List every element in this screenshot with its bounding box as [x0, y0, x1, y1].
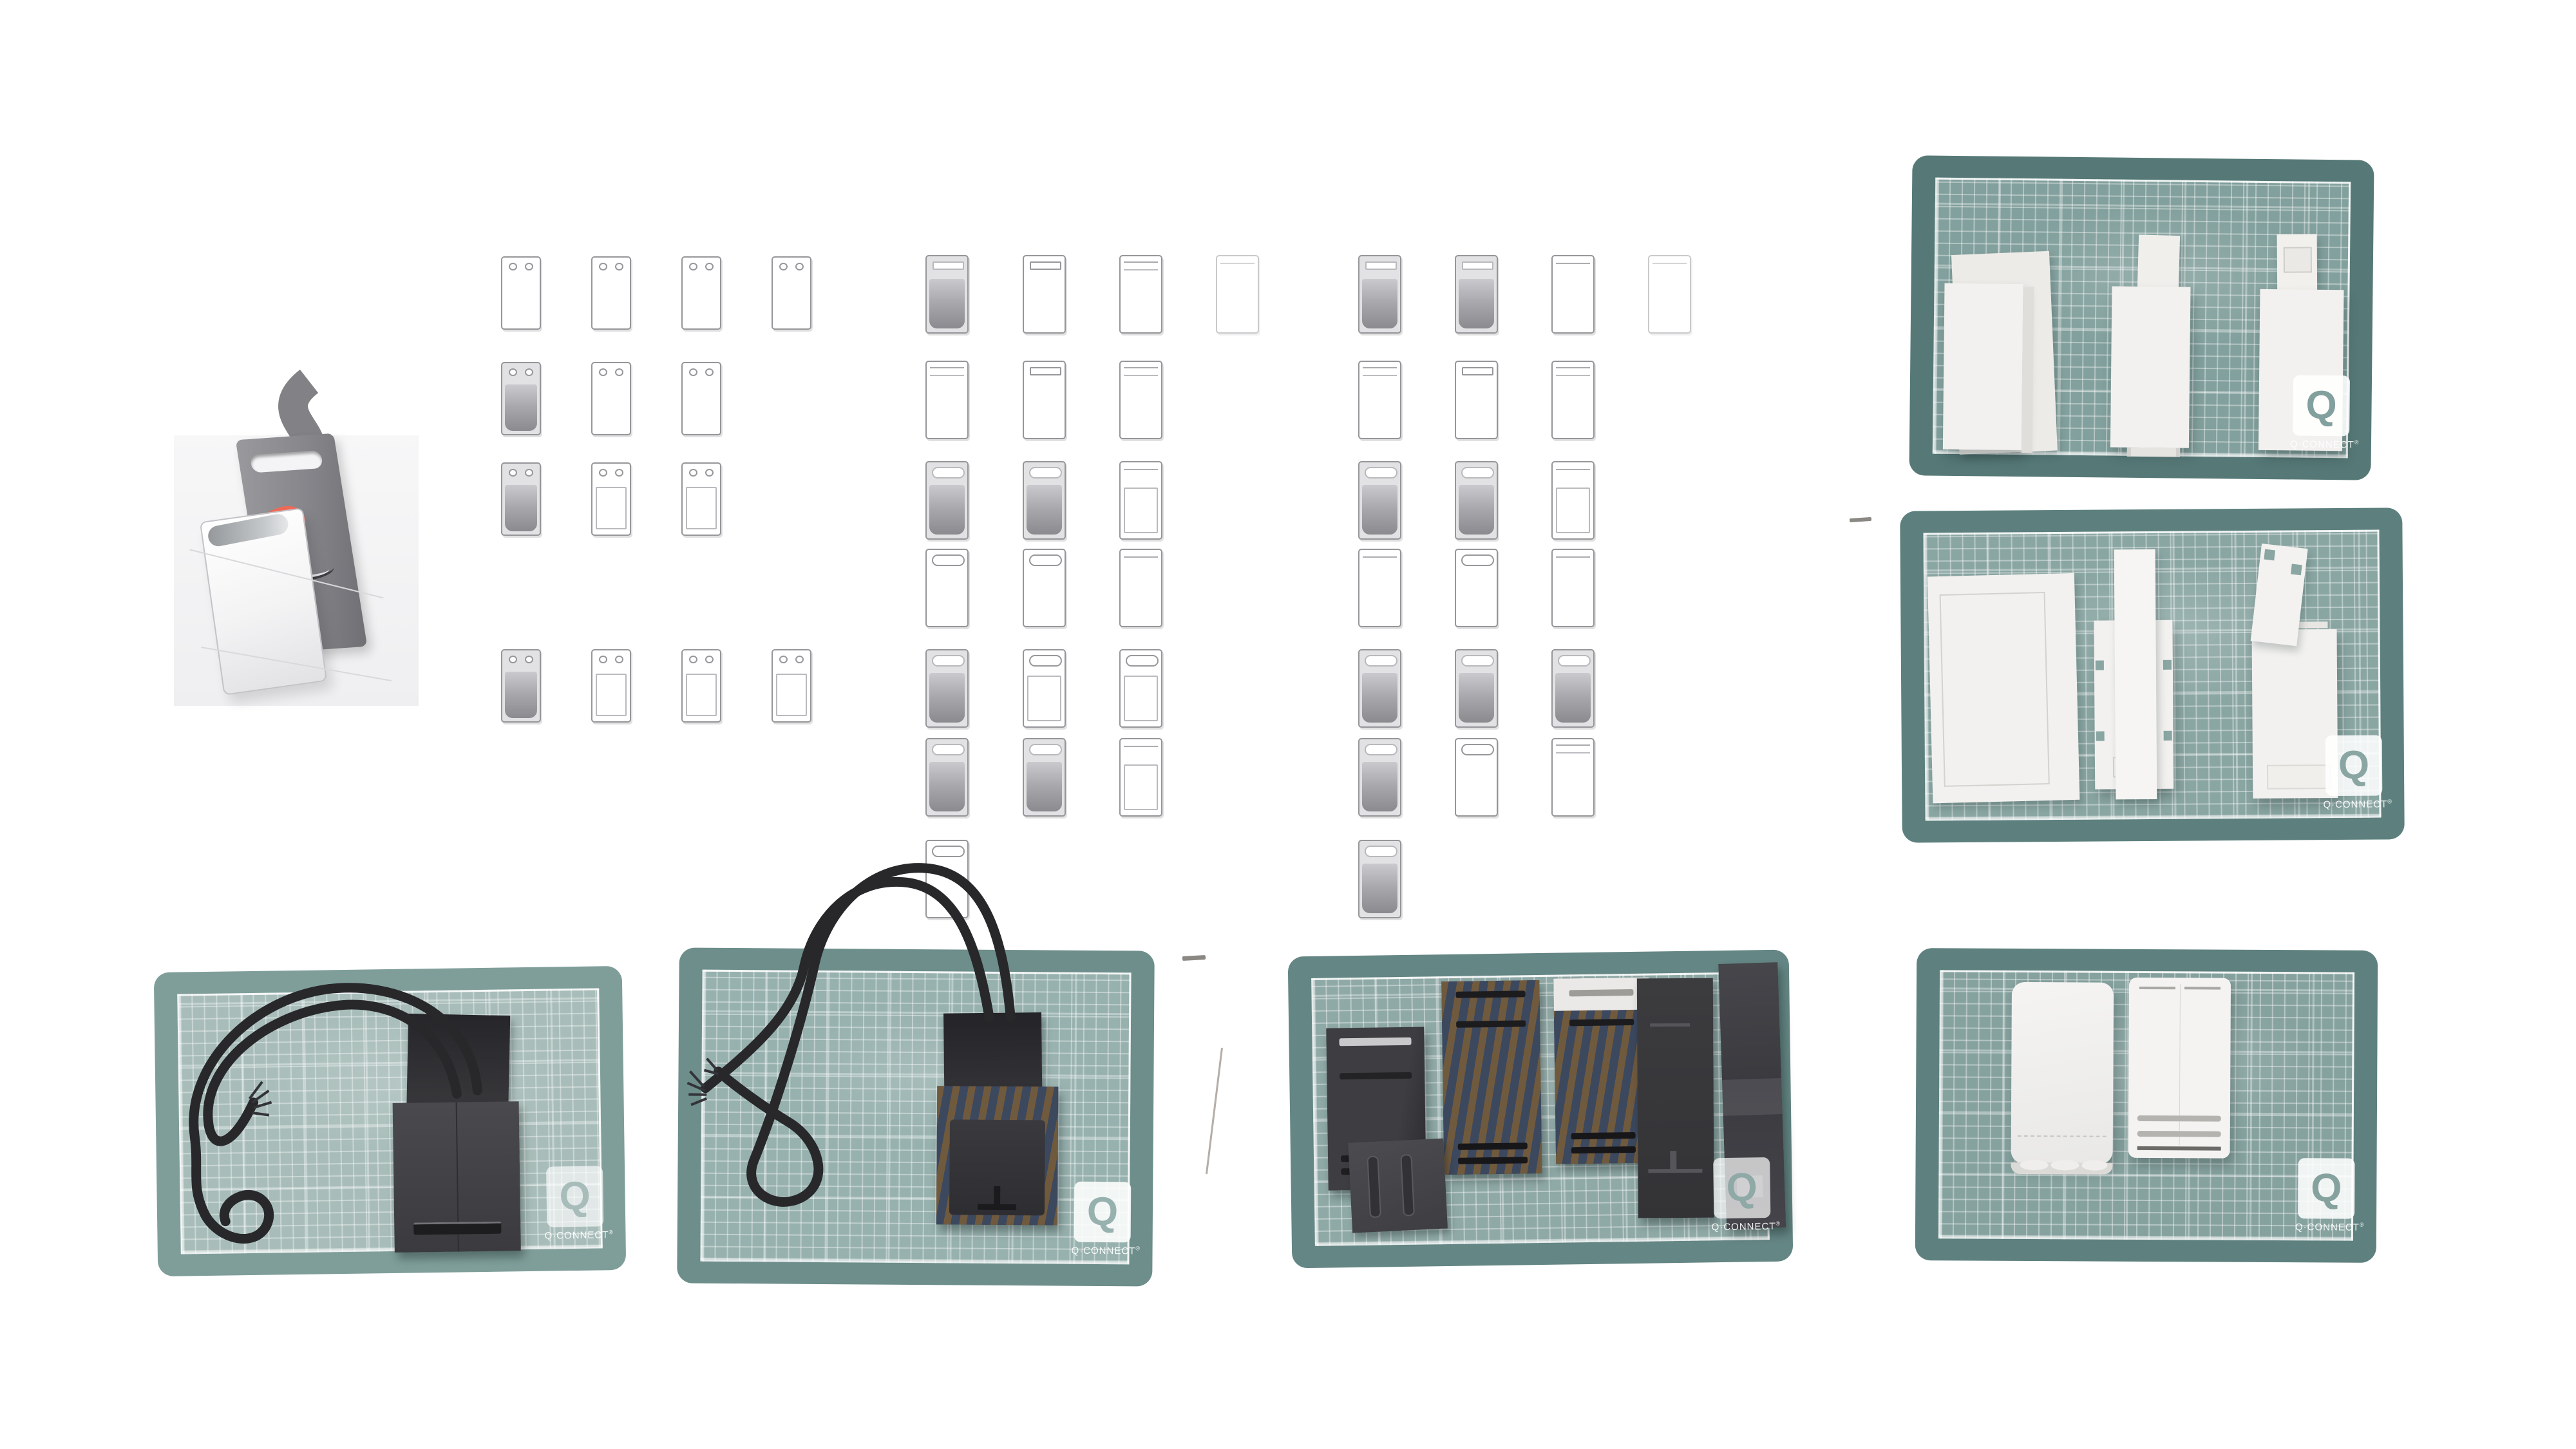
card-shaded-body	[1459, 673, 1493, 723]
foam-box-model-1	[1943, 283, 2023, 450]
card-pocket	[686, 487, 717, 529]
card-pocket	[1556, 488, 1590, 533]
t-cutout-stem	[994, 1186, 1000, 1204]
card-shaded-body	[929, 279, 964, 328]
strap-cutout	[2163, 660, 2172, 670]
sketch-card	[1358, 361, 1401, 439]
strap-notch	[2264, 549, 2275, 561]
box-slot	[1569, 1019, 1634, 1026]
print-model-rounded	[2011, 982, 2114, 1164]
backplate-hanger-slot	[250, 450, 324, 473]
mat-brand-logo: Q Q·CONNECT®	[1710, 1157, 1774, 1233]
card-top-slot	[1462, 367, 1493, 375]
q-connect-label: Q·CONNECT®	[2295, 1221, 2357, 1233]
sketch-card	[501, 362, 541, 435]
q-connect-icon: Q	[546, 1166, 603, 1227]
q-connect-label: Q·CONNECT®	[2290, 438, 2352, 450]
stray-dash-2	[1182, 955, 1206, 961]
plate-slot	[1367, 1156, 1381, 1218]
bottom-card-slot	[413, 1222, 501, 1235]
q-connect-icon: Q	[1713, 1157, 1770, 1218]
mat-surface	[700, 970, 1131, 1265]
box-side-face	[2022, 287, 2034, 453]
q-connect-icon: Q	[1074, 1182, 1132, 1243]
holder-strap-flap	[943, 1012, 1042, 1096]
card-shaded-body	[1362, 485, 1397, 535]
sketch-card	[591, 462, 631, 536]
stray-dash-1	[1850, 517, 1871, 522]
card-top-capsule	[1461, 467, 1494, 478]
card-top-capsule	[1365, 846, 1397, 857]
sketch-card	[1358, 649, 1401, 728]
wave-bump	[2020, 1160, 2048, 1170]
wave-bump	[2081, 1160, 2107, 1170]
sketch-card	[1216, 255, 1259, 334]
card-top-capsule	[1558, 655, 1591, 667]
q-connect-label: Q·CONNECT®	[1711, 1220, 1773, 1233]
sketch-card	[591, 649, 631, 723]
cutting-mat-foam-models: Q Q·CONNECT®	[1909, 155, 2374, 480]
card-shaded-body	[929, 673, 964, 723]
box-bottom-tab	[2267, 764, 2331, 790]
card-top-slot	[933, 261, 964, 270]
sketch-card	[1023, 255, 1066, 334]
sketch-card	[1358, 840, 1401, 918]
sketch-card	[1455, 738, 1498, 817]
stray-line	[1206, 1048, 1223, 1175]
card-top-line	[1124, 746, 1158, 747]
card-top-capsule	[932, 744, 965, 755]
card-top-lines	[930, 367, 964, 376]
card-top-line	[1556, 263, 1590, 264]
top-slot	[2139, 987, 2175, 989]
card-top-holes	[502, 656, 540, 663]
card-top-line	[1653, 263, 1687, 264]
sketch-card	[1648, 255, 1691, 334]
card-pocket	[1124, 764, 1158, 810]
bottom-slit	[2137, 1146, 2221, 1151]
box-slot	[1571, 1132, 1636, 1139]
strap-notch	[2291, 564, 2302, 576]
card-top-capsule	[932, 655, 965, 667]
sketch-card	[591, 256, 631, 330]
card-top-capsule	[1365, 467, 1397, 478]
panel-inset-outline	[1940, 592, 2050, 787]
card-top-capsule	[932, 554, 965, 566]
sketch-card	[1119, 461, 1162, 540]
q-glyph: Q	[2306, 386, 2337, 426]
sketch-card	[1119, 549, 1162, 627]
sketch-card	[681, 362, 721, 435]
sketch-card	[1551, 549, 1595, 627]
q-connect-icon: Q	[2298, 1158, 2354, 1218]
sketch-card	[1551, 649, 1595, 728]
card-top-lines	[1124, 367, 1158, 376]
sketch-card	[1358, 738, 1401, 817]
print-model-slotted	[2128, 978, 2231, 1159]
holder-strap-flap	[406, 1014, 510, 1112]
card-top-holes	[683, 469, 720, 477]
card-top-capsule	[932, 467, 965, 478]
sketch-card	[1358, 549, 1401, 627]
card-pocket	[1027, 676, 1061, 721]
lower-slot	[2137, 1115, 2221, 1122]
sketch-card	[772, 649, 811, 723]
card-top-capsule	[1365, 744, 1397, 755]
card-top-holes	[683, 368, 720, 376]
sketch-card	[1551, 361, 1595, 439]
sketch-card	[501, 462, 541, 536]
card-shaded-body	[1555, 673, 1590, 723]
card-shaded-body	[929, 485, 964, 535]
top-slot	[2184, 987, 2221, 989]
card-top-holes	[773, 656, 810, 663]
cutting-mat-paper-models: Q Q·CONNECT®	[1900, 507, 2405, 842]
strap-cutout	[2096, 661, 2104, 670]
card-top-capsule	[1461, 655, 1494, 667]
sketch-card	[501, 649, 541, 723]
card-shaded-body	[505, 672, 537, 718]
sketch-card	[1551, 255, 1595, 334]
foam-model-tab-window	[2277, 234, 2318, 296]
card-top-line	[1124, 469, 1158, 470]
mat-brand-logo: Q Q·CONNECT®	[2323, 735, 2385, 810]
card-top-line	[1556, 469, 1590, 470]
card-top-line	[1124, 556, 1158, 558]
sample-box-moire	[1441, 980, 1542, 1175]
strap-cutout	[2164, 731, 2172, 741]
card-top-capsule	[1126, 655, 1159, 667]
card-top-lines	[1556, 367, 1590, 376]
card-shaded-body	[929, 762, 964, 811]
card-top-lines	[1363, 367, 1397, 376]
design-process-collage: Q Q·CONNECT® Q Q·CONNECT®	[0, 0, 2576, 1449]
card-shaded-body	[1362, 673, 1397, 723]
sketch-card	[1551, 738, 1595, 817]
paper-vertical-strap	[2114, 549, 2157, 799]
mat-brand-logo: Q Q·CONNECT®	[2295, 1158, 2358, 1233]
box-slot	[1458, 1157, 1528, 1164]
card-top-capsule	[1029, 744, 1062, 755]
box-slot	[1458, 1142, 1528, 1150]
sample-plate-slots	[1348, 1139, 1448, 1233]
card-top-capsule	[1029, 655, 1062, 667]
card-pocket	[686, 674, 717, 716]
card-shaded-body	[1027, 762, 1061, 811]
card-pocket	[596, 487, 627, 529]
sketch-card	[1119, 738, 1162, 817]
card-top-slot	[1462, 261, 1493, 270]
card-shaded-body	[1459, 485, 1493, 535]
cutting-mat-lanyard-1: Q Q·CONNECT®	[154, 966, 627, 1276]
card-shaded-body	[505, 485, 537, 531]
card-top-slot	[1365, 261, 1397, 270]
sketch-card	[1455, 255, 1498, 334]
sketch-card	[1119, 649, 1162, 728]
card-top-holes	[592, 263, 630, 270]
sketch-card	[1023, 549, 1066, 627]
q-connect-label: Q·CONNECT®	[544, 1229, 606, 1241]
sketch-card	[1455, 649, 1498, 728]
sketch-card	[1119, 361, 1162, 439]
box-bottom-tabs	[2127, 448, 2180, 457]
card-top-capsule	[1029, 467, 1062, 478]
cutting-mat-materials: Q Q·CONNECT®	[1288, 950, 1794, 1269]
mat-brand-logo: Q Q·CONNECT®	[1071, 1182, 1133, 1257]
card-top-lines	[1124, 261, 1158, 270]
card-top-capsule	[1461, 554, 1494, 566]
sketch-card	[1358, 255, 1401, 334]
mat-brand-logo: Q Q·CONNECT®	[2290, 375, 2353, 450]
sketch-card	[1455, 461, 1498, 540]
card-top-capsule	[932, 846, 965, 857]
mat-surface	[177, 988, 603, 1254]
foam-box-model-2	[2110, 287, 2191, 448]
sketch-card	[925, 840, 969, 918]
card-top-holes	[592, 368, 630, 376]
card-shaded-body	[1027, 485, 1061, 535]
plate-slot	[1400, 1154, 1415, 1217]
sketch-card	[772, 256, 811, 330]
body-recess	[949, 1119, 1045, 1215]
card-shaded-body	[1362, 864, 1397, 913]
card-pocket	[776, 674, 808, 716]
mat-brand-logo: Q Q·CONNECT®	[544, 1166, 607, 1241]
card-top-slot	[1030, 367, 1061, 375]
model-score-line	[2018, 1135, 2107, 1137]
sketch-card	[681, 462, 721, 536]
sketch-card	[1023, 649, 1066, 728]
sketch-card	[1023, 738, 1066, 817]
sketch-card	[925, 738, 969, 817]
card-top-holes	[773, 263, 810, 270]
sketch-card	[925, 461, 969, 540]
sketch-card	[925, 255, 969, 334]
t-cutout-bar	[978, 1204, 1016, 1210]
paper-panel-model	[1927, 573, 2080, 803]
strap-cutout	[2096, 732, 2105, 741]
sample-strap-1	[1637, 978, 1714, 1218]
cutting-mat-print-models: Q Q·CONNECT®	[1915, 948, 2378, 1263]
holder-body	[393, 1101, 521, 1253]
card-top-line	[1220, 263, 1255, 264]
card-top-holes	[592, 469, 630, 477]
card-top-line	[1556, 556, 1590, 558]
card-top-holes	[502, 263, 540, 270]
q-connect-icon: Q	[2293, 375, 2350, 436]
sketch-card	[1358, 461, 1401, 540]
card-top-holes	[592, 656, 630, 663]
box-slot	[1569, 989, 1633, 996]
strap-fold-highlight	[1722, 1078, 1783, 1116]
lower-slot	[2137, 1131, 2221, 1137]
tab-window-cutout	[2284, 247, 2312, 272]
sketch-card	[925, 649, 969, 728]
sketch-card	[1023, 361, 1066, 439]
card-top-slot	[1030, 261, 1061, 270]
card-top-capsule	[1461, 744, 1494, 755]
card-top-capsule	[1029, 554, 1062, 566]
card-shaded-body	[505, 384, 537, 431]
card-shaded-body	[1362, 279, 1397, 328]
card-top-holes	[502, 469, 540, 477]
card-top-holes	[683, 656, 720, 663]
wave-bump	[2050, 1160, 2079, 1170]
box-slot	[1339, 1037, 1411, 1046]
strap-seam	[1650, 1023, 1690, 1027]
box-slot	[1340, 1072, 1412, 1080]
card-shaded-body	[1459, 279, 1493, 328]
box-slot	[1456, 1020, 1526, 1028]
box-slot	[1571, 1146, 1636, 1153]
sketch-card	[925, 361, 969, 439]
box-slot	[1455, 990, 1525, 998]
sketch-card	[1023, 461, 1066, 540]
sketch-card	[591, 362, 631, 435]
sketch-card	[501, 256, 541, 330]
card-top-line	[1363, 556, 1397, 558]
holder-body	[936, 1086, 1058, 1225]
q-connect-label: Q·CONNECT®	[2323, 798, 2385, 810]
sketch-card	[1551, 461, 1595, 540]
sketch-card	[681, 256, 721, 330]
sketch-card	[925, 549, 969, 627]
concept-render	[161, 380, 431, 715]
sketch-card	[1455, 361, 1498, 439]
sketch-card	[1119, 255, 1162, 334]
card-pocket	[596, 674, 627, 716]
card-top-capsule	[1365, 655, 1397, 667]
card-pocket	[1124, 488, 1158, 533]
card-pocket	[1124, 676, 1158, 721]
card-top-holes	[683, 263, 720, 270]
cutting-mat-lanyard-2: Q Q·CONNECT®	[677, 947, 1155, 1286]
sketch-card	[1455, 549, 1498, 627]
card-top-lines	[1556, 744, 1590, 753]
box-white-band	[1553, 978, 1649, 1011]
card-top-holes	[502, 368, 540, 376]
q-connect-icon: Q	[2325, 735, 2383, 797]
sketch-card	[681, 649, 721, 723]
card-shaded-body	[1362, 762, 1397, 811]
strap-seam	[1670, 1151, 1676, 1170]
q-connect-label: Q·CONNECT®	[1071, 1245, 1133, 1257]
